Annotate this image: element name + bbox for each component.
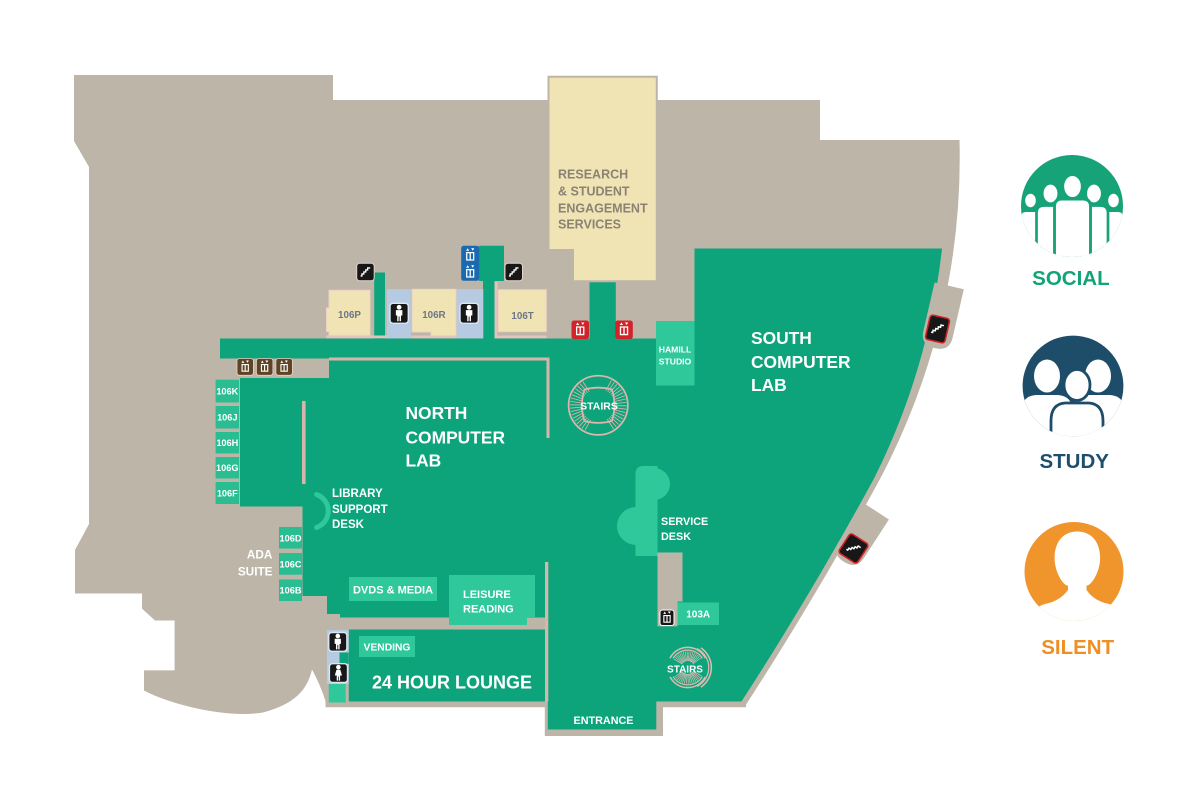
svg-text:DESK: DESK [661, 531, 691, 543]
svg-text:HAMILL: HAMILL [659, 345, 691, 355]
svg-text:ENTRANCE: ENTRANCE [574, 715, 634, 727]
svg-text:106T: 106T [511, 311, 533, 322]
svg-text:VENDING: VENDING [364, 643, 411, 654]
svg-text:COMPUTER: COMPUTER [406, 427, 506, 447]
svg-text:LIBRARY: LIBRARY [332, 488, 383, 500]
svg-text:106F: 106F [217, 489, 238, 499]
svg-text:COMPUTER: COMPUTER [751, 352, 851, 372]
svg-text:SUPPORT: SUPPORT [332, 504, 388, 516]
svg-text:LAB: LAB [406, 450, 442, 470]
svg-text:NORTH: NORTH [406, 403, 468, 423]
svg-text:STAIRS: STAIRS [667, 665, 703, 676]
svg-text:SOCIAL: SOCIAL [1032, 267, 1109, 290]
svg-text:LAB: LAB [751, 375, 787, 395]
svg-text:24 HOUR LOUNGE: 24 HOUR LOUNGE [372, 673, 532, 693]
svg-text:106J: 106J [217, 413, 237, 423]
svg-text:106R: 106R [422, 310, 445, 321]
svg-text:LEISURE: LEISURE [463, 589, 511, 601]
svg-text:103A: 103A [686, 610, 710, 621]
svg-text:DVDS & MEDIA: DVDS & MEDIA [353, 585, 433, 597]
svg-text:106B: 106B [280, 586, 302, 596]
svg-text:DESK: DESK [332, 519, 365, 531]
svg-text:106P: 106P [338, 310, 361, 321]
svg-text:RESEARCH: RESEARCH [558, 168, 628, 182]
svg-text:& STUDENT: & STUDENT [558, 185, 630, 199]
svg-text:106D: 106D [280, 533, 302, 543]
svg-text:STAIRS: STAIRS [580, 401, 618, 413]
svg-text:SERVICES: SERVICES [558, 218, 621, 232]
svg-text:ENGAGEMENT: ENGAGEMENT [558, 202, 648, 216]
svg-text:SERVICE: SERVICE [661, 516, 708, 528]
svg-text:READING: READING [463, 604, 514, 616]
svg-text:ADA: ADA [247, 548, 273, 562]
svg-text:106H: 106H [216, 438, 238, 448]
svg-text:106G: 106G [216, 463, 238, 473]
svg-text:106C: 106C [280, 559, 302, 569]
svg-text:106K: 106K [216, 387, 238, 397]
svg-text:SILENT: SILENT [1041, 636, 1114, 659]
svg-text:SUITE: SUITE [238, 565, 273, 579]
svg-text:SOUTH: SOUTH [751, 328, 812, 348]
svg-text:STUDY: STUDY [1039, 450, 1109, 473]
svg-text:STUDIO: STUDIO [659, 357, 692, 367]
